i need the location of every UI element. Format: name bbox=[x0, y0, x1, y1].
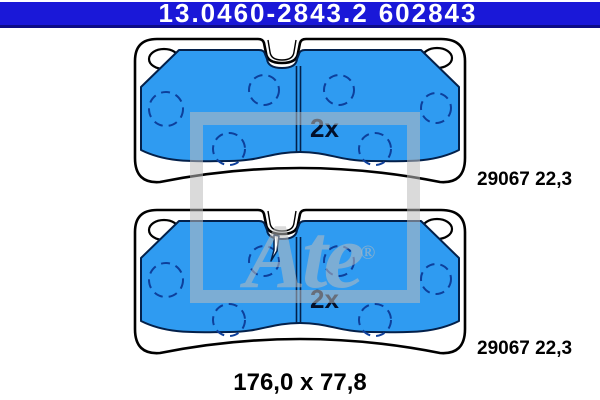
dimensions-label: 176,0 x 77,8 bbox=[170, 369, 430, 397]
brake-pad-shape bbox=[135, 210, 465, 353]
pad-reference-bottom: 29067 22,3 bbox=[477, 338, 572, 360]
brake-pad-shape bbox=[135, 39, 465, 182]
quantity-label-top: 2x bbox=[310, 113, 339, 143]
quantity-label-bottom: 2x bbox=[310, 284, 339, 314]
brake-pad-top: 2x bbox=[135, 39, 465, 182]
pad-reference-top: 29067 22,3 bbox=[477, 169, 572, 191]
brake-pad-catalog-page: 13.0460-2843.2 602843 bbox=[0, 0, 600, 400]
brake-pad-bottom: 2x bbox=[135, 210, 465, 353]
